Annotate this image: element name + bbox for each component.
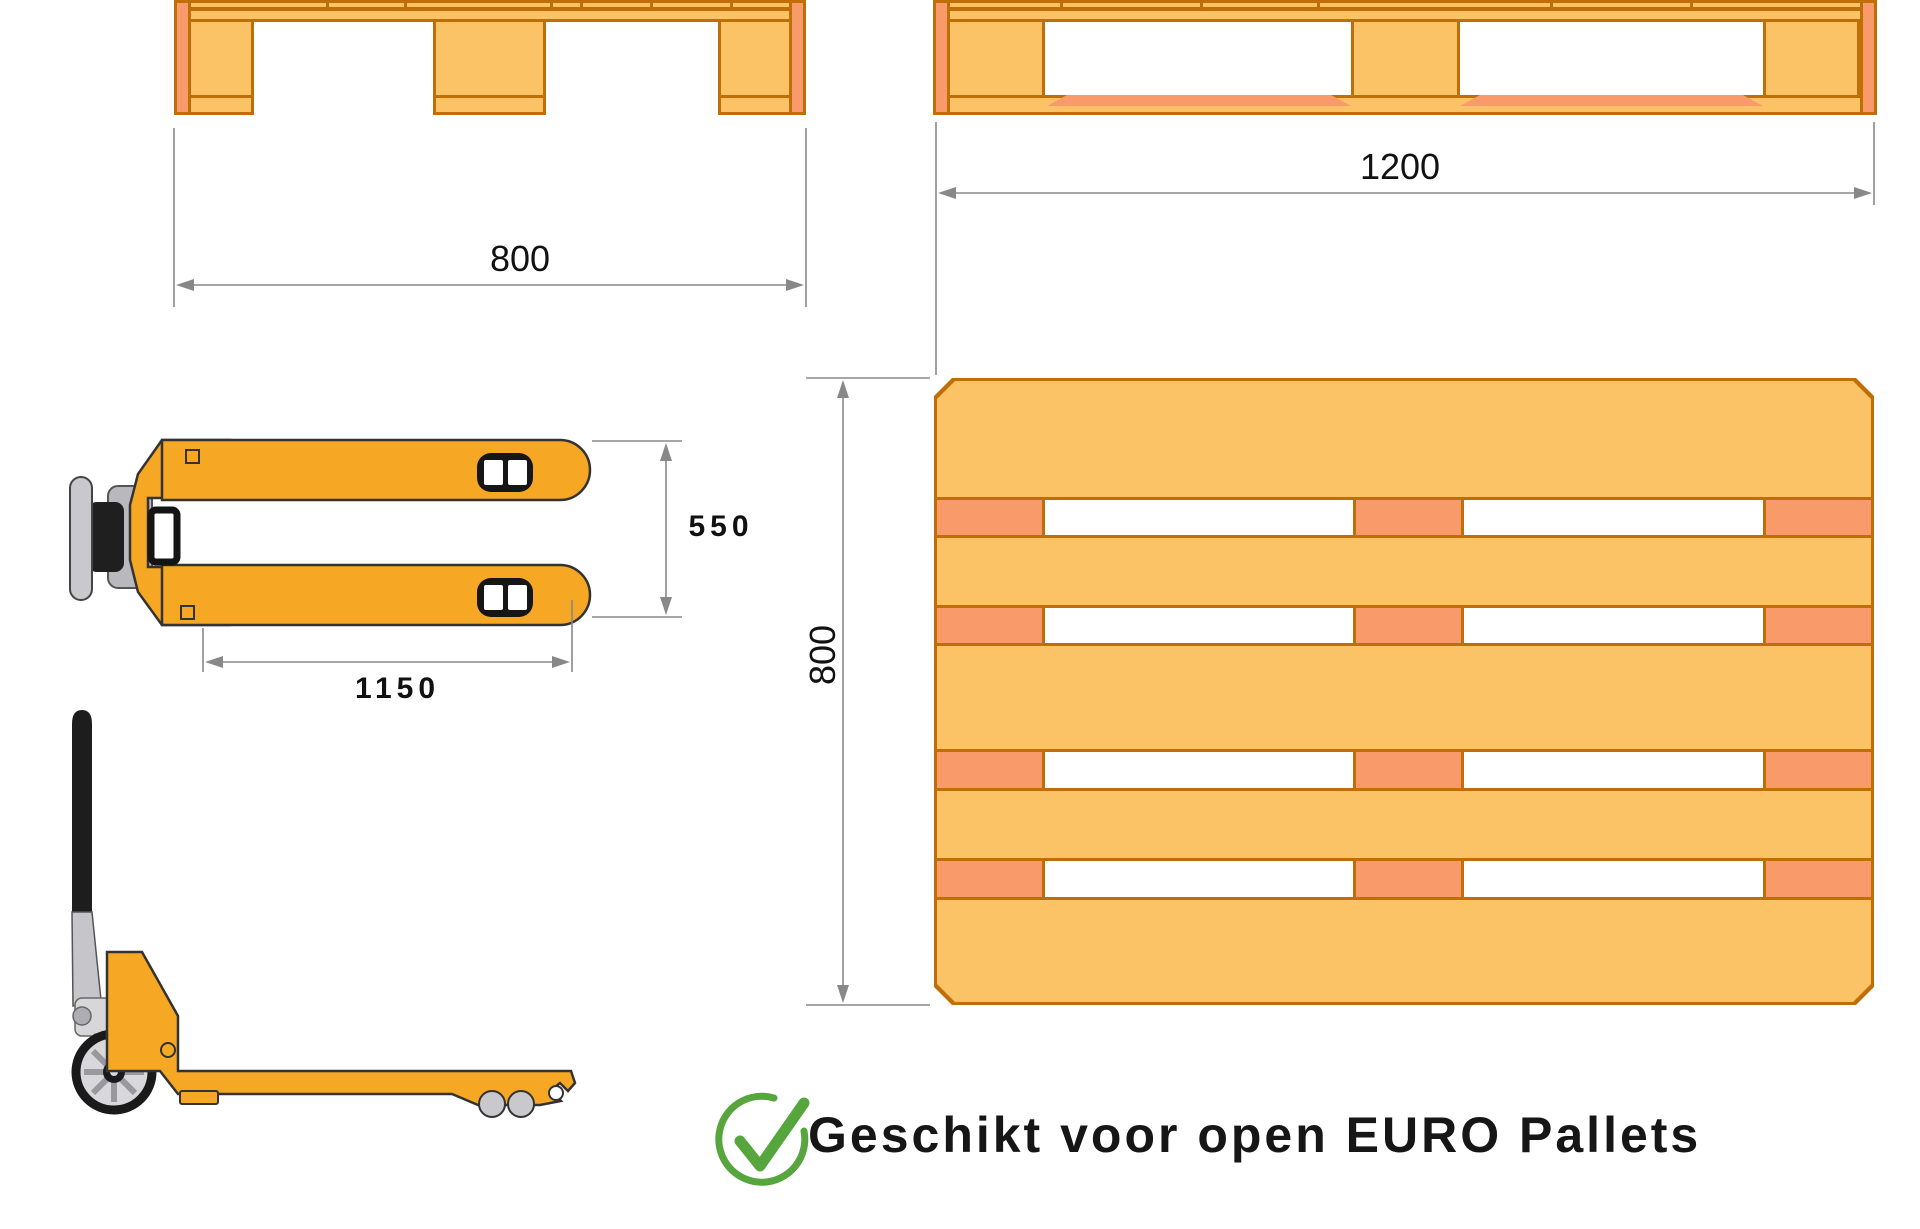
euro-pallet-diagram: 800 1200 800 550 1150 Geschikt voor open… [0,0,1920,1229]
arrowhead [205,656,223,668]
caption-text: Geschikt voor open EURO Pallets [808,1106,1701,1164]
dimension-label-fork-span: 550 [676,510,766,544]
arrowhead [176,279,194,291]
dimension-label-side-length: 1200 [1330,146,1470,188]
arrowhead [660,443,672,461]
arrowhead [786,279,804,291]
arrowhead [552,656,570,668]
arrowhead [938,187,956,199]
arrowhead [837,380,849,398]
dimension-label-front-width: 800 [470,238,570,280]
dimension-label-fork-length: 1150 [315,672,480,706]
check-circle-icon [708,1083,820,1195]
dimension-lines [0,0,1920,1229]
arrowhead [1854,187,1872,199]
arrowhead [660,597,672,615]
arrowhead [837,985,849,1003]
dimension-label-top-width: 800 [802,600,844,710]
